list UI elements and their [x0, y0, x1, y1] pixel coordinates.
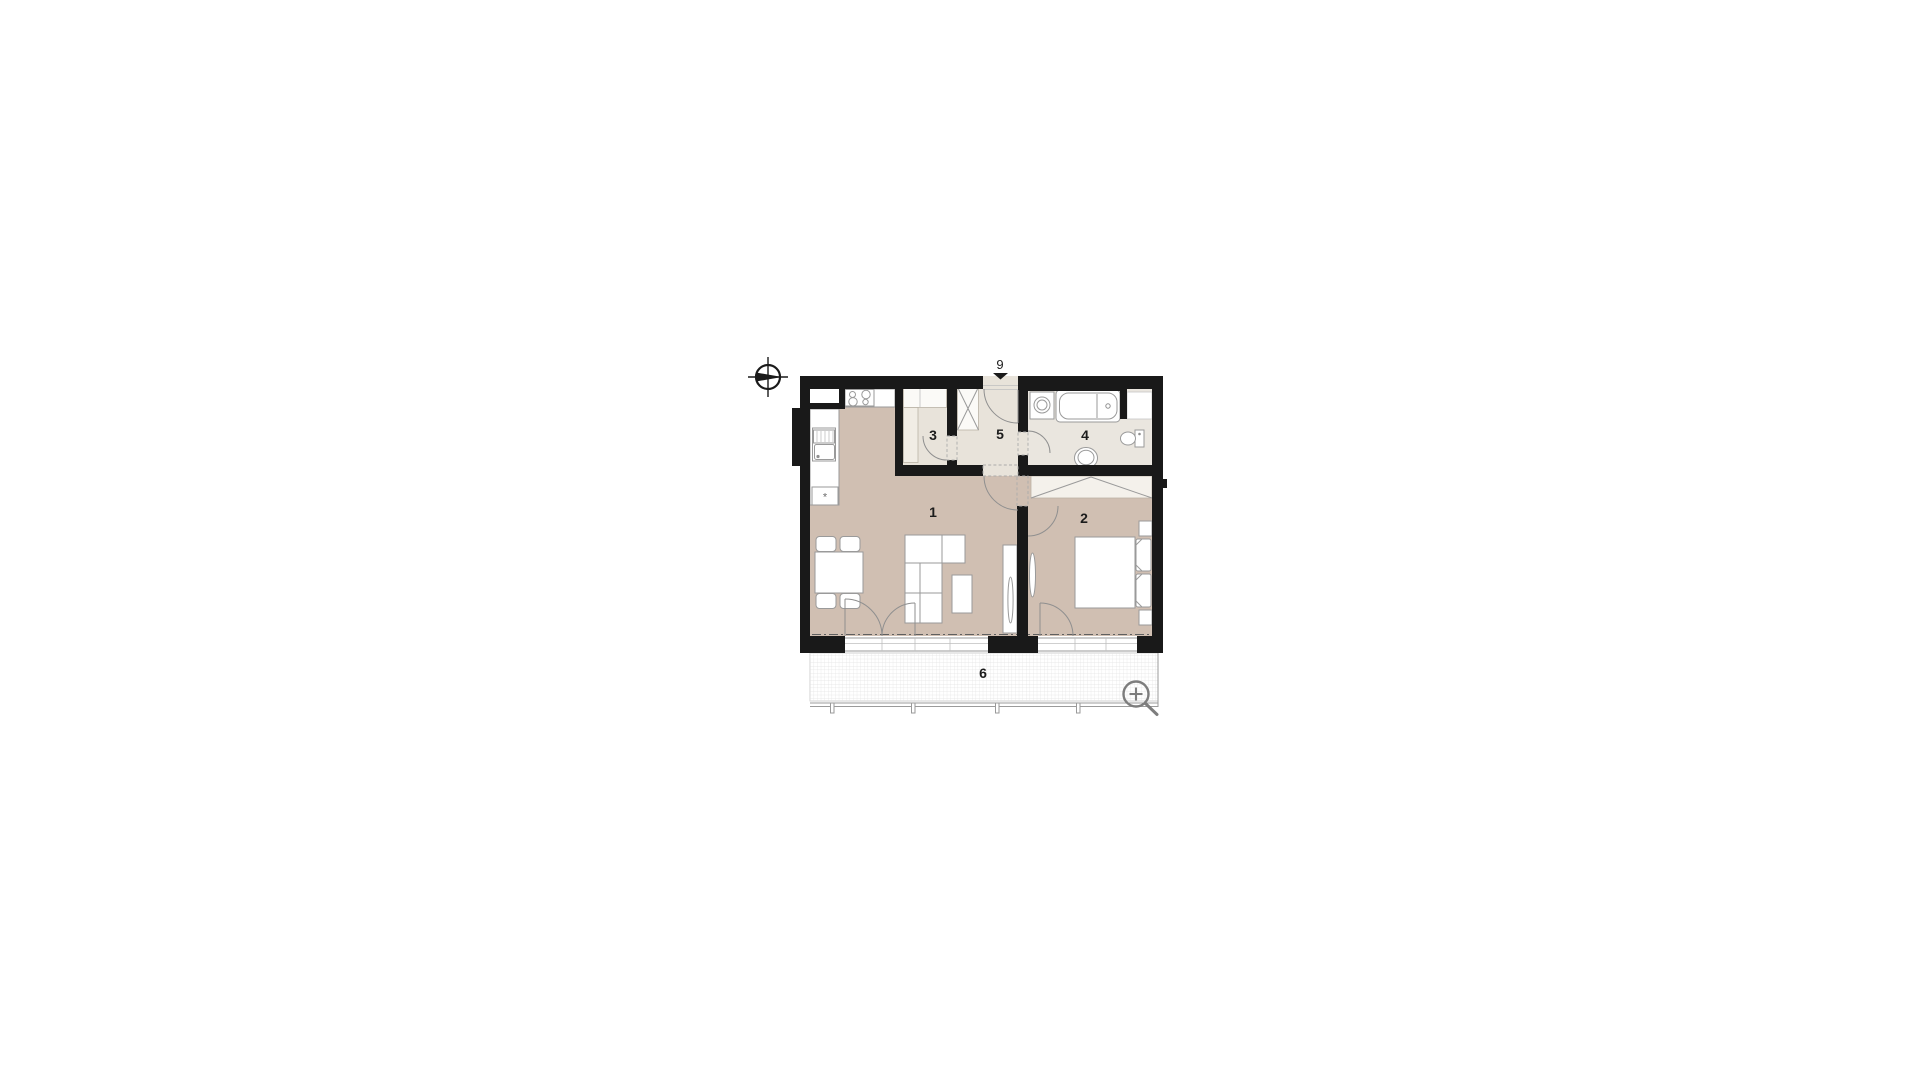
page: * [0, 0, 1920, 1080]
room-label-living: 1 [929, 504, 937, 520]
room-label-balcony: 6 [979, 665, 987, 681]
kitchen-counter: * [810, 409, 839, 505]
nightstand [1139, 610, 1152, 625]
bathtub [1056, 390, 1120, 422]
bedroom-wardrobe [1031, 476, 1152, 498]
window-bedroom [1038, 638, 1137, 651]
room-label-hall: 5 [996, 426, 1004, 442]
dining-table [815, 552, 863, 593]
floor-plan-canvas: * [0, 0, 1920, 1080]
room-label-bathroom: 4 [1081, 427, 1089, 443]
pillow [1136, 574, 1151, 607]
window-living [845, 638, 988, 651]
bathroom-niche [1127, 392, 1152, 419]
washing-machine [1030, 392, 1054, 419]
nightstand [1139, 521, 1152, 536]
appliance-symbol: * [823, 492, 828, 504]
balcony [810, 653, 1158, 713]
entrance-label: 9 [996, 357, 1003, 372]
hall-shaft [958, 387, 979, 430]
coffee-table [952, 575, 972, 613]
pillow [1136, 539, 1151, 571]
room-label-closet: 3 [929, 427, 937, 443]
living-cabinet [1003, 545, 1017, 633]
bedroom-cabinet [1030, 553, 1036, 597]
north-compass-icon [748, 357, 788, 397]
room-label-bedroom: 2 [1080, 510, 1088, 526]
dishwasher: * [812, 487, 838, 505]
stove [842, 389, 895, 407]
